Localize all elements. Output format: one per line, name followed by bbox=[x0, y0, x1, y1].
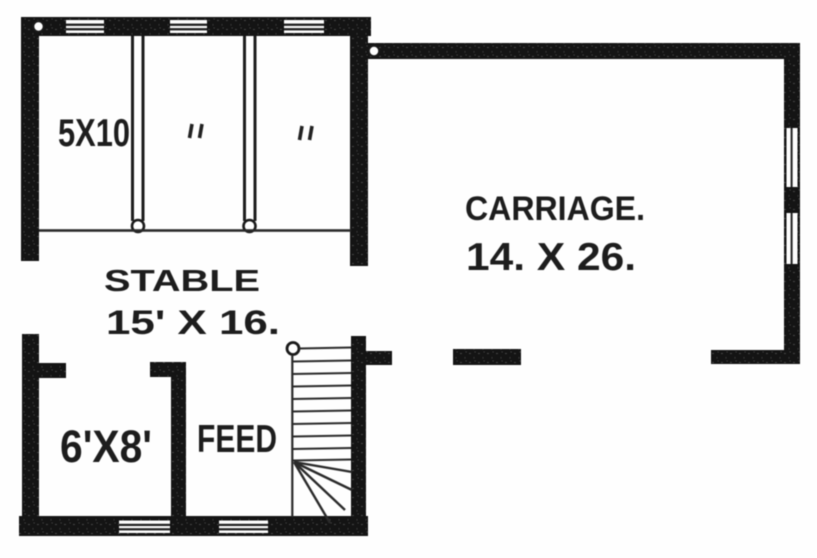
svg-text:STABLE: STABLE bbox=[104, 263, 260, 298]
svg-text:6'X8': 6'X8' bbox=[60, 421, 152, 472]
svg-text:15' X 16.: 15' X 16. bbox=[106, 304, 280, 342]
svg-text:5X10: 5X10 bbox=[58, 112, 130, 155]
svg-text:CARRIAGE.: CARRIAGE. bbox=[465, 190, 645, 228]
svg-text:FEED: FEED bbox=[197, 418, 277, 461]
svg-text:14. X 26.: 14. X 26. bbox=[466, 236, 636, 279]
